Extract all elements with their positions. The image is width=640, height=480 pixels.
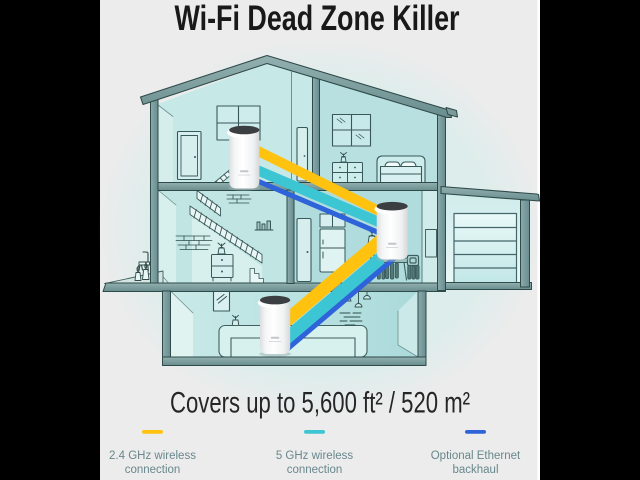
svg-text:Wi-Fi Dead Zone Killer: Wi-Fi Dead Zone Killer (175, 0, 460, 38)
svg-text:2.4 GHz wireless: 2.4 GHz wireless (109, 450, 196, 462)
svg-text:5 GHz wireless: 5 GHz wireless (276, 450, 354, 462)
svg-text:connection: connection (125, 464, 181, 476)
svg-text:backhaul: backhaul (452, 464, 498, 476)
svg-text:Optional Ethernet: Optional Ethernet (431, 450, 521, 462)
svg-text:connection: connection (287, 464, 343, 476)
svg-text:Covers up to 5,600 ft² / 520 m: Covers up to 5,600 ft² / 520 m² (170, 387, 470, 420)
